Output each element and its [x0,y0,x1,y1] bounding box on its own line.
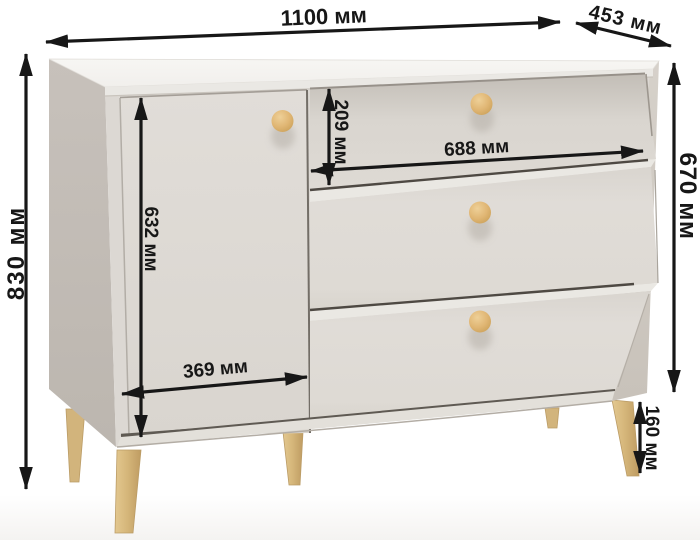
svg-text:160 мм: 160 мм [641,405,662,470]
svg-text:670 мм: 670 мм [674,153,700,240]
svg-text:632 мм: 632 мм [140,206,161,271]
svg-text:209 мм: 209 мм [330,99,351,164]
svg-text:688 мм: 688 мм [444,136,510,161]
svg-text:830 мм: 830 мм [3,206,30,300]
svg-text:1100 мм: 1100 мм [280,2,367,30]
